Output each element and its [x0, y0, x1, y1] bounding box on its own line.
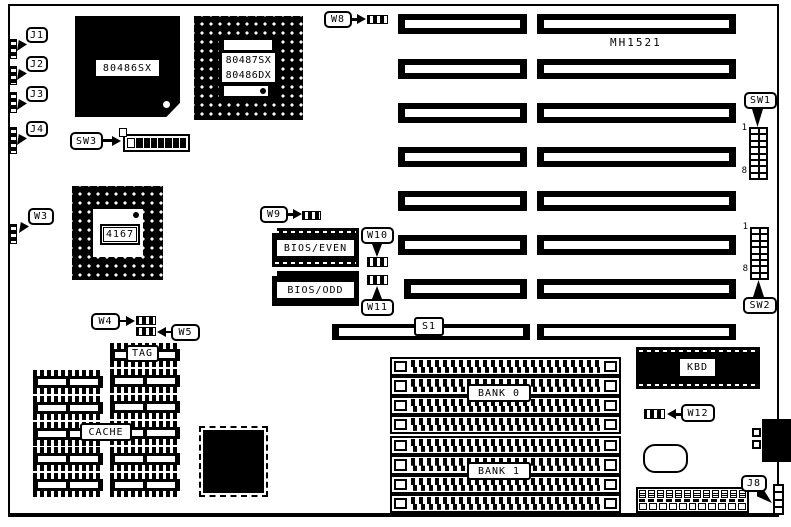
- chip-4167-label-frame: 4167: [100, 224, 140, 245]
- callout-sw3: SW3: [70, 132, 103, 150]
- connector-cell: [728, 503, 736, 510]
- socket-bar: [224, 40, 272, 50]
- simm-latch: [394, 498, 407, 509]
- battery-outline: [643, 444, 688, 473]
- slot-stripe: [544, 241, 729, 249]
- isa-slot-segment: [537, 59, 736, 79]
- din-keyboard-connector: [762, 419, 791, 462]
- callout-w5: W5: [171, 324, 200, 341]
- dip-switch-cell: [760, 148, 767, 152]
- dip-switch-cell: [151, 138, 157, 148]
- dip-switch-cell: [760, 161, 767, 165]
- dip-switch-cell: [165, 138, 171, 148]
- dip-window: [147, 404, 175, 410]
- callout-sw1: SW1: [744, 92, 777, 109]
- dip-body: [110, 479, 180, 491]
- slot-stripe: [405, 153, 520, 161]
- callout-w11: W11: [361, 299, 394, 316]
- fpu-label-line1: 80487SX: [222, 53, 275, 68]
- dip-switch-cell: [158, 138, 164, 148]
- dip-switch-cell: [760, 167, 767, 171]
- chip-notch: [272, 271, 277, 276]
- slot-stripe: [405, 241, 520, 249]
- simm-latch: [394, 361, 407, 372]
- pin1-dot: [133, 212, 139, 218]
- slot-stripe: [544, 197, 729, 205]
- arrow-right-icon: [126, 316, 135, 326]
- jumper-w8: [367, 15, 388, 24]
- connector-pin: [684, 490, 691, 498]
- connector-pin: [675, 490, 682, 498]
- callout-w4: W4: [91, 313, 120, 330]
- dip-body: [110, 401, 180, 413]
- dip-pins: [110, 387, 180, 393]
- simm-latch: [394, 419, 407, 430]
- dip-switch-cell: [760, 142, 767, 146]
- connector-cell: [679, 503, 687, 510]
- dip-pins: [33, 491, 103, 497]
- isa-slot-segment: [398, 147, 527, 167]
- connector-cell-row: [639, 503, 746, 510]
- simm-latch: [394, 459, 407, 470]
- simm-latch: [394, 440, 407, 451]
- dip-switch-cell: [751, 142, 758, 146]
- callout-w8: W8: [324, 11, 352, 28]
- dip-window: [115, 482, 143, 488]
- callout-j2: J2: [26, 56, 48, 72]
- cache-dip-chip: [110, 473, 180, 497]
- connector-cell: [669, 503, 677, 510]
- connector-cell: [738, 503, 746, 510]
- isa-slot-segment: [398, 14, 527, 34]
- dip-switch-cell: [761, 261, 768, 265]
- dip-window: [38, 431, 66, 437]
- simm-latch: [604, 498, 617, 509]
- chip-bios-odd-label: BIOS/ODD: [277, 282, 354, 298]
- pin1-dot: [163, 101, 170, 108]
- jumper-w10: [367, 257, 388, 267]
- arrow-right-icon: [293, 209, 302, 219]
- dip-window: [70, 456, 98, 462]
- simm-socket: [390, 436, 621, 455]
- chip-kbd-label: KBD: [680, 359, 715, 376]
- cache-dip-chip: [110, 395, 180, 419]
- slot-stripe: [405, 20, 520, 28]
- dip-switch-sw2: [750, 227, 769, 280]
- dip-switch-cell: [761, 255, 768, 259]
- slot-stripe: [544, 65, 729, 73]
- dip-pins: [110, 413, 180, 419]
- arrow-right-icon: [112, 136, 121, 146]
- dip-switch-cell: [751, 155, 758, 159]
- jumper-w11: [367, 275, 388, 285]
- connector-cell: [639, 503, 647, 510]
- jumper-j8: [773, 484, 784, 515]
- connector-pin: [666, 490, 673, 498]
- cache-chip-column-right: [110, 343, 180, 497]
- dip-pins: [33, 388, 103, 394]
- cache-dip-chip: [33, 447, 103, 471]
- bottom-connector: [636, 487, 749, 513]
- jumper-j4: [10, 127, 17, 154]
- connector-pin: [712, 490, 719, 498]
- jumper-w4: [136, 316, 156, 325]
- dip-pins: [33, 465, 103, 471]
- callout-j3: J3: [26, 86, 48, 102]
- dip-switch-cell: [751, 174, 758, 178]
- isa-slot-segment: [398, 103, 527, 123]
- slot-stripe: [405, 65, 520, 73]
- dip-switch-cell: [752, 248, 759, 252]
- connector-pin: [721, 490, 728, 498]
- dip-switch-cell: [751, 161, 758, 165]
- cache-dip-chip: [33, 396, 103, 420]
- connector-pin: [639, 490, 646, 498]
- simm-pins: [411, 497, 600, 510]
- socket-label: 80487SX 80486DX: [221, 52, 276, 83]
- chip-80486sx-label: 80486SX: [96, 60, 159, 76]
- chip-dash-line: [275, 262, 356, 264]
- isa-slot-segment: [537, 324, 736, 340]
- connector-cell: [708, 503, 716, 510]
- dip-window: [38, 405, 66, 411]
- connector-cell: [698, 503, 706, 510]
- dip-window: [38, 456, 66, 462]
- dip-window: [147, 482, 175, 488]
- connector-tab: [752, 428, 761, 437]
- simm-latch: [604, 440, 617, 451]
- fpu-label-line2: 80486DX: [222, 68, 275, 83]
- isa-slot-segment: [398, 235, 527, 255]
- dip-window: [70, 482, 98, 488]
- simm-pins: [411, 439, 600, 452]
- dip-switch-cell: [761, 242, 768, 246]
- dip-switch-cell: [180, 138, 186, 148]
- pin1-dot: [260, 88, 266, 94]
- simm-pins: [411, 360, 600, 373]
- chip-bios-even-label: BIOS/EVEN: [277, 240, 354, 256]
- slot-stripe: [544, 153, 729, 161]
- connector-cell: [689, 503, 697, 510]
- jumper-j2: [10, 66, 17, 85]
- simm-latch: [394, 479, 407, 490]
- dip-switch-cell: [752, 267, 759, 271]
- jumper-w5: [136, 327, 156, 336]
- bank0-label: BANK 0: [467, 384, 531, 402]
- dip-window: [70, 405, 98, 411]
- simm-latch: [604, 380, 617, 391]
- jumper-w3: [10, 224, 17, 244]
- dip-switch-cell: [752, 274, 759, 278]
- connector-pin: [657, 490, 664, 498]
- dip-switch-cell: [752, 242, 759, 246]
- connector-pin: [730, 490, 737, 498]
- slot-stripe: [544, 328, 729, 336]
- dip-body: [110, 453, 180, 465]
- isa-slot-segment: [398, 59, 527, 79]
- callout-w10: W10: [361, 227, 394, 244]
- dip-switch-cell: [752, 229, 759, 233]
- chip-bios-odd: BIOS/ODD: [272, 271, 359, 306]
- dip-body: [33, 453, 103, 465]
- sw1-pin1-label: 1: [737, 123, 747, 133]
- dip-switch-cell: [761, 229, 768, 233]
- slot-stripe: [544, 285, 729, 293]
- slot-stripe: [544, 109, 729, 117]
- dip-switch-sw3: [123, 134, 190, 152]
- connector-pin: [648, 490, 655, 498]
- simm-latch: [604, 400, 617, 411]
- jumper-w9: [302, 211, 321, 220]
- dip-window: [115, 378, 143, 384]
- slot-stripe: [405, 109, 520, 117]
- dip-switch-cell: [761, 267, 768, 271]
- chip-4167-label: 4167: [103, 227, 137, 242]
- isa-slot-segment: [537, 147, 736, 167]
- dip-window: [38, 482, 66, 488]
- dip-window: [147, 378, 175, 384]
- callout-w12: W12: [681, 404, 715, 422]
- dip-window: [38, 379, 66, 385]
- jumper-w12: [644, 409, 665, 419]
- connector-tab: [752, 440, 761, 449]
- dip-switch-cell: [751, 148, 758, 152]
- slot-stripe: [405, 197, 520, 205]
- simm-latch: [394, 380, 407, 391]
- dip-body: [33, 376, 103, 388]
- dip-switch-cell: [760, 174, 767, 178]
- dip-window: [115, 456, 143, 462]
- chip-tag-label: TAG: [126, 345, 159, 362]
- simm-latch: [604, 361, 617, 372]
- jumper-j1: [10, 39, 17, 59]
- dip-body: [33, 479, 103, 491]
- dip-switch-cell: [761, 248, 768, 252]
- board-title: MH1521: [610, 36, 662, 49]
- connector-divider: [639, 499, 746, 502]
- isa-slot-segment: [537, 235, 736, 255]
- qfp-chip: [203, 430, 264, 493]
- chip-bios-even: BIOS/EVEN: [272, 228, 359, 267]
- simm-socket: [390, 494, 621, 513]
- callout-j4: J4: [26, 121, 48, 137]
- callout-j1: J1: [26, 27, 48, 43]
- connector-pin-row: [639, 490, 746, 498]
- dip-switch-cell: [751, 135, 758, 139]
- connector-cell: [659, 503, 667, 510]
- slot-s1-label: S1: [414, 317, 444, 336]
- dip-window: [70, 379, 98, 385]
- slot-stripe: [411, 285, 520, 293]
- dip-body: [33, 402, 103, 414]
- dip-body: [110, 375, 180, 387]
- dip-switch-cell: [752, 255, 759, 259]
- isa-slot-segment: [537, 191, 736, 211]
- callout-w3: W3: [28, 208, 54, 225]
- chip-kbd: KBD: [636, 347, 760, 389]
- sw2-pin1-label: 1: [738, 222, 748, 232]
- chip-dash-line: [639, 384, 757, 386]
- dip-switch-cell: [144, 138, 150, 148]
- dip-switch-cell: [761, 235, 768, 239]
- motherboard-diagram: S1 MH1521 SW1 1 8 1 8 SW2 W8 J1 J2 J3 J4…: [0, 0, 791, 527]
- cache-dip-chip: [110, 447, 180, 471]
- dip-switch-cell: [760, 135, 767, 139]
- connector-cell: [649, 503, 657, 510]
- dip-switch-cell: [136, 138, 142, 148]
- simm-latch: [604, 459, 617, 470]
- sw1-pin8-label: 8: [737, 166, 747, 176]
- dip-switch-cell: [760, 129, 767, 133]
- simm-socket: [390, 415, 621, 434]
- simm-latch: [394, 400, 407, 411]
- chip-dash-line: [275, 231, 356, 233]
- dip-window: [147, 456, 175, 462]
- dip-switch-cell: [752, 261, 759, 265]
- connector-pin: [703, 490, 710, 498]
- dip-switch-cell: [752, 235, 759, 239]
- callout-w9: W9: [260, 206, 288, 223]
- dip-switch-cell: [761, 274, 768, 278]
- connector-pin: [693, 490, 700, 498]
- isa-slot-segment: [537, 14, 736, 34]
- dip-switch-cell: [751, 129, 758, 133]
- simm-latch: [604, 479, 617, 490]
- cache-dip-chip: [33, 370, 103, 394]
- header-pin: [775, 508, 782, 513]
- dip-switch-sw1: [749, 127, 768, 180]
- arrow-right-icon: [357, 14, 366, 24]
- dip-window: [147, 430, 175, 436]
- chip-dash-line: [639, 350, 757, 352]
- simm-pins: [411, 418, 600, 431]
- jumper-j3: [10, 92, 17, 113]
- cache-label: CACHE: [80, 423, 132, 441]
- simm-latch: [604, 419, 617, 430]
- slot-stripe: [544, 20, 729, 28]
- dip-window: [115, 404, 143, 410]
- callout-sw2: SW2: [743, 297, 777, 314]
- dip-pins: [33, 414, 103, 420]
- cache-dip-chip: [33, 473, 103, 497]
- header-pin: [775, 501, 782, 506]
- dip-switch-cell: [751, 167, 758, 171]
- simm-socket: [390, 357, 621, 376]
- isa-slot-segment: [537, 103, 736, 123]
- isa-slot-segment: [537, 279, 736, 299]
- dip-pins: [110, 491, 180, 497]
- sw2-pin8-label: 8: [738, 264, 748, 274]
- dip-switch-cell: [127, 138, 135, 148]
- dip-switch-cell: [173, 138, 179, 148]
- header-pin: [775, 493, 782, 498]
- header-pin: [775, 486, 782, 491]
- connector-cell: [718, 503, 726, 510]
- cache-dip-chip: [110, 369, 180, 393]
- isa-slot-segment: [404, 279, 527, 299]
- socket-4167: 4167: [72, 186, 163, 280]
- socket-80487sx-80486dx: 80487SX 80486DX: [194, 16, 303, 120]
- dip-pins: [110, 465, 180, 471]
- isa-slot-segment: [398, 191, 527, 211]
- callout-j8: J8: [741, 475, 767, 492]
- dip-switch-cell: [760, 155, 767, 159]
- bank1-label: BANK 1: [467, 462, 531, 480]
